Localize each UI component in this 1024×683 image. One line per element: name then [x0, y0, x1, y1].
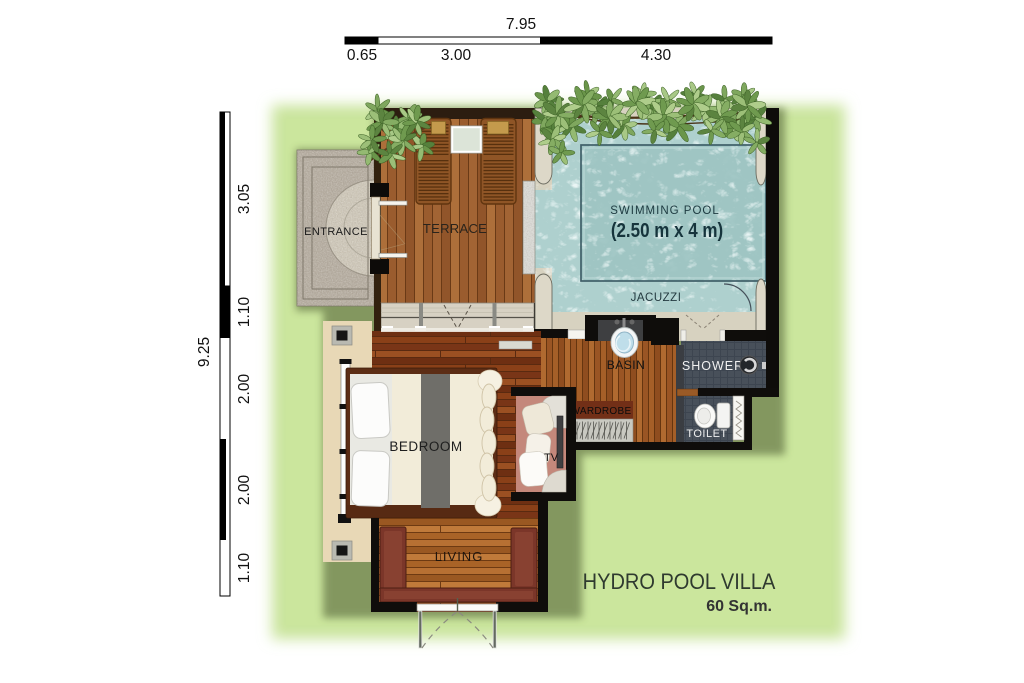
svg-text:3.00: 3.00 [441, 47, 472, 64]
svg-text:2.00: 2.00 [236, 475, 253, 506]
svg-text:0.65: 0.65 [347, 47, 377, 64]
svg-text:2.00: 2.00 [236, 374, 253, 405]
svg-text:BASIN: BASIN [607, 358, 646, 372]
svg-text:TOILET: TOILET [686, 428, 727, 440]
svg-text:TERRACE: TERRACE [423, 221, 487, 236]
svg-text:LIVING: LIVING [435, 549, 484, 564]
svg-text:SWIMMING POOL: SWIMMING POOL [610, 205, 719, 217]
svg-text:JACUZZI: JACUZZI [631, 292, 682, 304]
svg-text:60 Sq.m.: 60 Sq.m. [706, 598, 772, 615]
svg-text:3.05: 3.05 [236, 184, 253, 214]
svg-text:TV: TV [544, 452, 559, 464]
svg-text:1.10: 1.10 [236, 553, 253, 584]
svg-text:SHOWER: SHOWER [682, 359, 744, 373]
svg-text:HYDRO POOL VILLA: HYDRO POOL VILLA [583, 570, 776, 594]
svg-text:1.10: 1.10 [236, 297, 253, 328]
svg-text:9.25: 9.25 [196, 337, 213, 367]
svg-text:WARDROBE: WARDROBE [571, 406, 632, 417]
svg-text:BEDROOM: BEDROOM [389, 439, 462, 454]
svg-text:(2.50 m x 4 m): (2.50 m x 4 m) [611, 219, 723, 242]
svg-text:4.30: 4.30 [641, 47, 672, 64]
svg-text:ENTRANCE: ENTRANCE [304, 226, 368, 238]
svg-text:7.95: 7.95 [506, 16, 536, 33]
